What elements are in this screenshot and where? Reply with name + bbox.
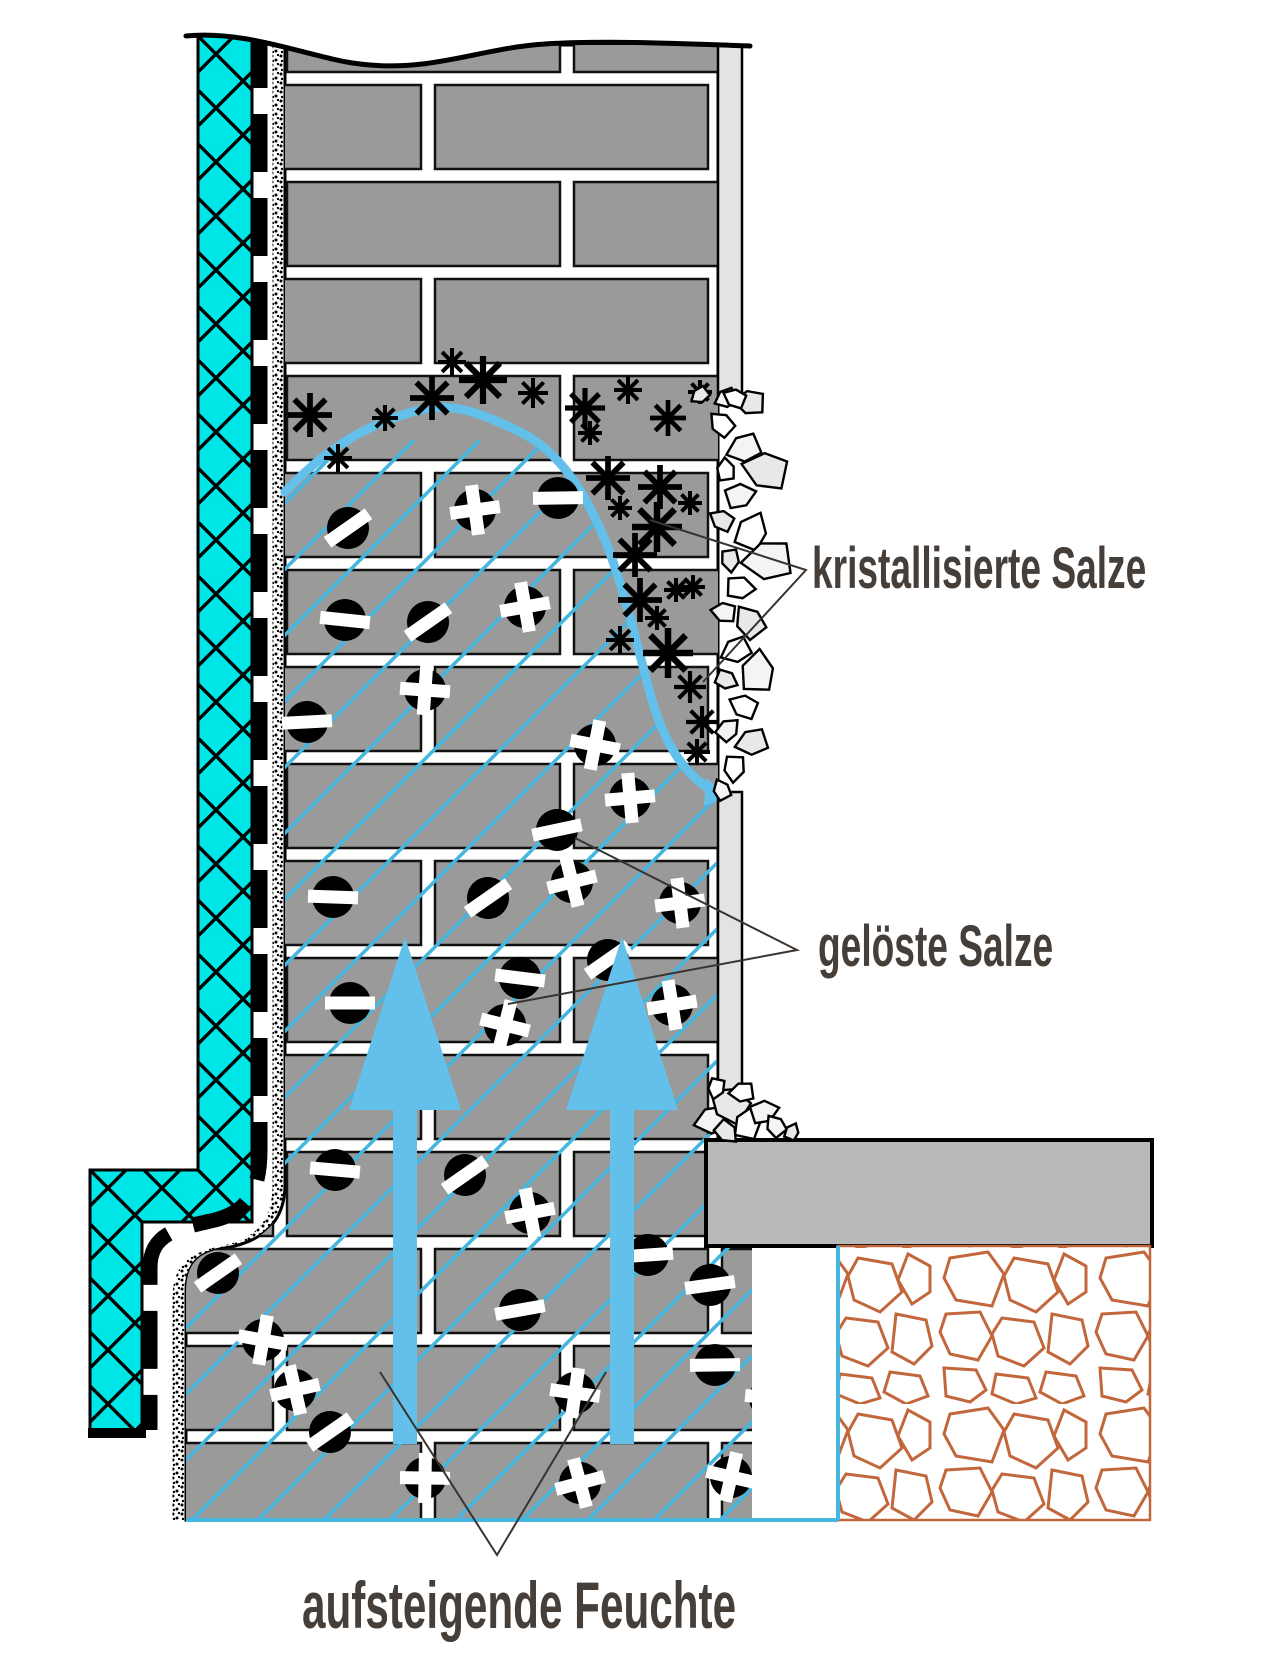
crystallized-salt-icon <box>674 671 706 703</box>
plaster-fragment <box>730 696 758 719</box>
brick <box>287 0 560 72</box>
crystallized-salt-icon <box>613 533 657 577</box>
crystallized-salt-icon <box>664 578 688 602</box>
crystallized-salt-icon <box>645 606 669 630</box>
brick <box>0 861 134 945</box>
label-dissolved-salts: gelöste Salze <box>818 915 1053 979</box>
plaster-layer-lower <box>718 792 742 1092</box>
brick <box>0 1055 134 1139</box>
label-rising-damp-text: aufsteigende Feuchte <box>302 1568 736 1642</box>
gravel-bed <box>838 1246 1150 1520</box>
brick <box>722 1055 995 1139</box>
brick <box>722 85 995 169</box>
brick <box>287 764 560 848</box>
insulation-layer <box>90 30 252 1436</box>
crystallized-salt-icon <box>650 400 686 436</box>
hatch-line <box>1142 440 1280 1560</box>
brick <box>722 279 995 363</box>
plaster-fragment <box>715 670 738 689</box>
crystallized-salt-icon <box>608 496 632 520</box>
brick <box>574 182 847 266</box>
brick <box>0 85 134 169</box>
hatch-line <box>1274 440 1280 1560</box>
brick <box>861 0 1134 72</box>
brick <box>287 182 560 266</box>
plaster-fragment <box>735 729 768 754</box>
brick <box>435 85 708 169</box>
brick <box>861 376 1134 460</box>
label-rising-damp: aufsteigende Feuchte <box>302 1568 736 1642</box>
brick <box>0 1443 134 1527</box>
insulation-bottom-cap <box>88 1428 146 1438</box>
crystallized-salt-icon <box>288 393 332 437</box>
plaster-fragment <box>737 607 766 640</box>
brick <box>861 182 1134 266</box>
rising-damp-diagram: kristallisierte Salze gelöste Salze aufs… <box>0 0 1280 1668</box>
brick <box>435 279 708 363</box>
label-crystallized-salts-text: kristallisierte Salze <box>812 537 1146 601</box>
plaster-fragment <box>728 578 756 599</box>
crystallized-salt-icon <box>324 444 352 472</box>
plaster-layer-upper <box>718 45 742 396</box>
hatch-line <box>0 440 84 1560</box>
crystallized-salt-icon <box>686 706 718 738</box>
brick <box>0 667 134 751</box>
crystallized-salt-icon <box>643 628 693 678</box>
crystallized-salt-icon <box>438 348 466 376</box>
crystallized-salt-icon <box>586 456 630 500</box>
diagram-page: kristallisierte Salze gelöste Salze aufs… <box>0 0 1280 1668</box>
crystallized-salt-icon <box>578 421 602 445</box>
plaster-fragment <box>725 484 756 508</box>
plaster-fragment <box>722 550 739 573</box>
hatch-line <box>1208 440 1280 1560</box>
plaster-fragment <box>717 458 734 481</box>
crystallized-salt-icon <box>681 575 705 599</box>
crystallized-salt-icon <box>372 405 398 431</box>
crystallized-salt-icon <box>614 376 642 404</box>
crystallized-salt-icon <box>410 376 454 420</box>
brick <box>861 764 1134 848</box>
rubble-piece <box>784 1123 798 1140</box>
brick <box>0 279 134 363</box>
crystallized-salt-icon <box>518 378 548 408</box>
crystallized-salt-icon <box>606 626 634 654</box>
crystallized-salt-icon <box>459 356 507 404</box>
hatch-line <box>0 440 18 1560</box>
brick <box>574 0 847 72</box>
plaster-fragment <box>725 757 744 783</box>
crystallized-salt-icon <box>684 739 710 765</box>
label-crystallized-salts: kristallisierte Salze <box>812 537 1146 601</box>
label-dissolved-salts-text: gelöste Salze <box>818 915 1053 979</box>
crystallized-salt-icon <box>565 388 605 428</box>
sidewalk-slab <box>706 1140 1152 1246</box>
crystallized-salt-icon <box>678 491 702 515</box>
brick <box>0 473 134 557</box>
